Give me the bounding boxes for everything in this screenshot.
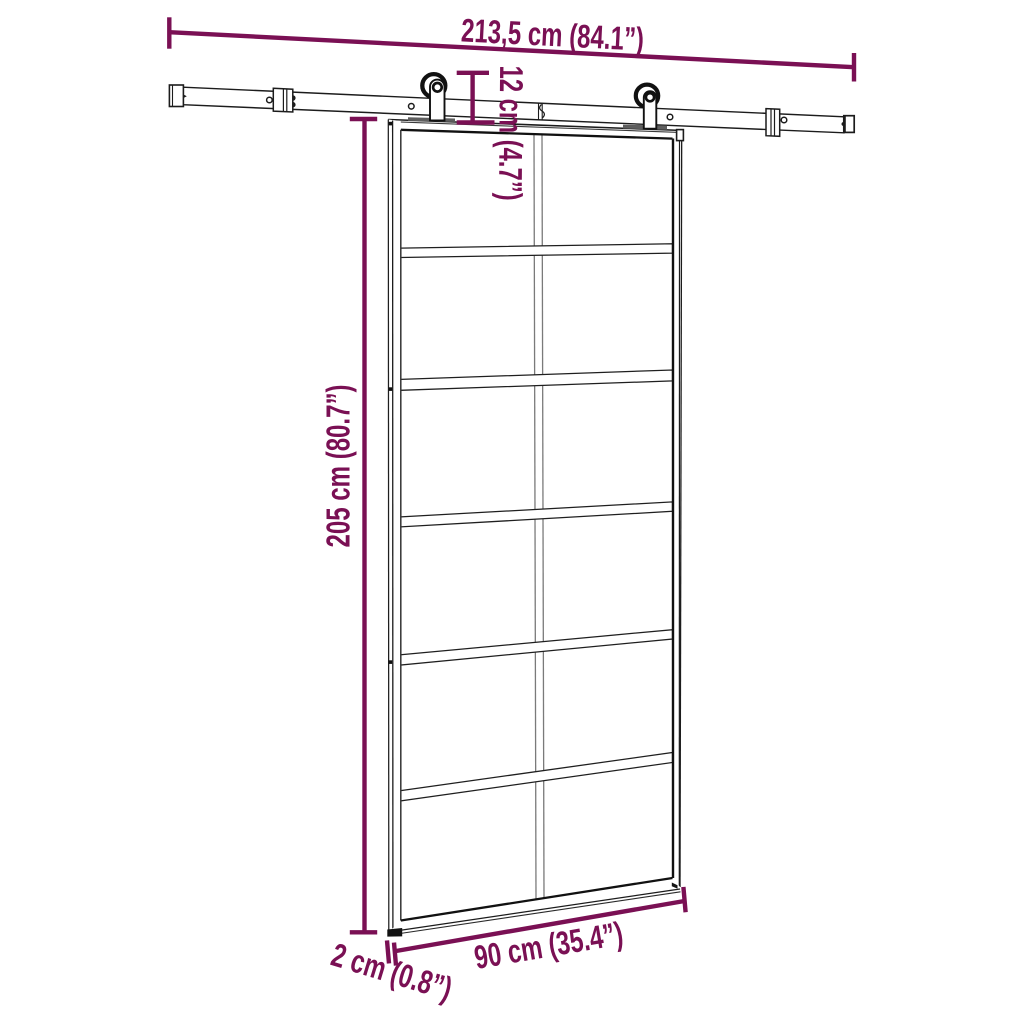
svg-text:12 cm (4.7”): 12 cm (4.7”) — [492, 65, 530, 200]
svg-text:205 cm (80.7”): 205 cm (80.7”) — [320, 385, 357, 548]
